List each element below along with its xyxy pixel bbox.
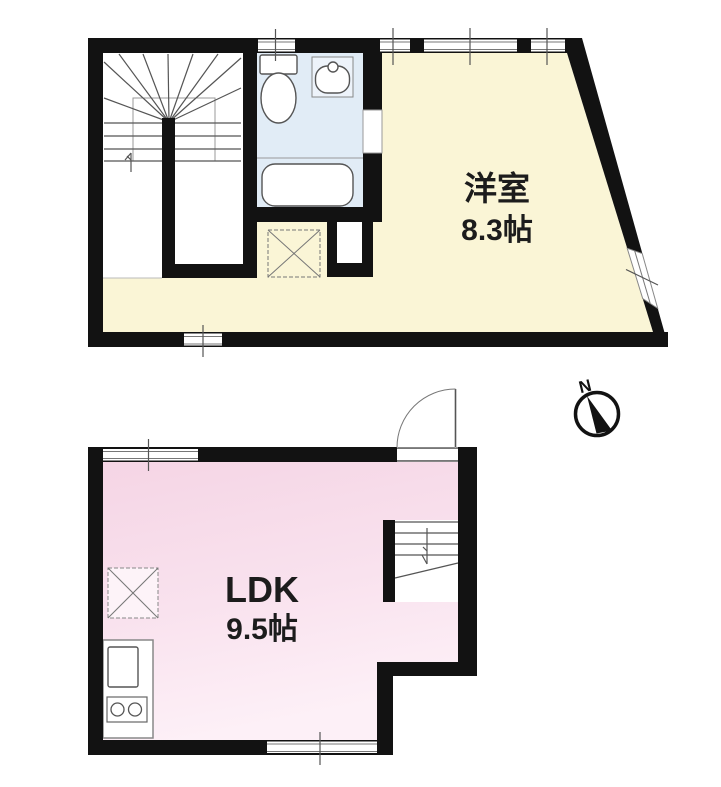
floorplan-svg: 洋室 8.3帖 N xyxy=(0,0,721,787)
room2-size: 8.3帖 xyxy=(461,214,533,247)
stair-divider-wall xyxy=(162,118,175,278)
door-opening xyxy=(397,448,458,462)
room2-label: 洋室 xyxy=(464,170,530,207)
room1-label: LDK xyxy=(225,569,299,610)
refrigerator-space-icon xyxy=(108,568,158,618)
door-swing-arc xyxy=(397,389,456,448)
stair-stub-wall xyxy=(383,520,395,602)
kitchen-sink-icon xyxy=(108,647,138,687)
compass: N xyxy=(576,376,619,436)
stairwell-floor xyxy=(103,53,257,278)
floor-1-plan: LDK 9.5帖 xyxy=(88,389,477,765)
toilet-icon xyxy=(260,55,297,123)
closet-niche xyxy=(327,217,373,277)
compass-north-label: N xyxy=(577,376,594,397)
bathtub-icon xyxy=(262,164,353,206)
floor-2-plan: 洋室 8.3帖 xyxy=(88,28,668,357)
kitchen-counter xyxy=(103,640,153,738)
two-burner-stove-icon xyxy=(107,697,147,722)
room1-size: 9.5帖 xyxy=(226,613,298,646)
washbasin-icon xyxy=(312,57,353,97)
entrance-door xyxy=(397,389,458,462)
floorplan-canvas: 洋室 8.3帖 N xyxy=(0,0,721,787)
bathroom-door-opening xyxy=(363,110,382,153)
staircase-lower-icon xyxy=(383,520,458,602)
